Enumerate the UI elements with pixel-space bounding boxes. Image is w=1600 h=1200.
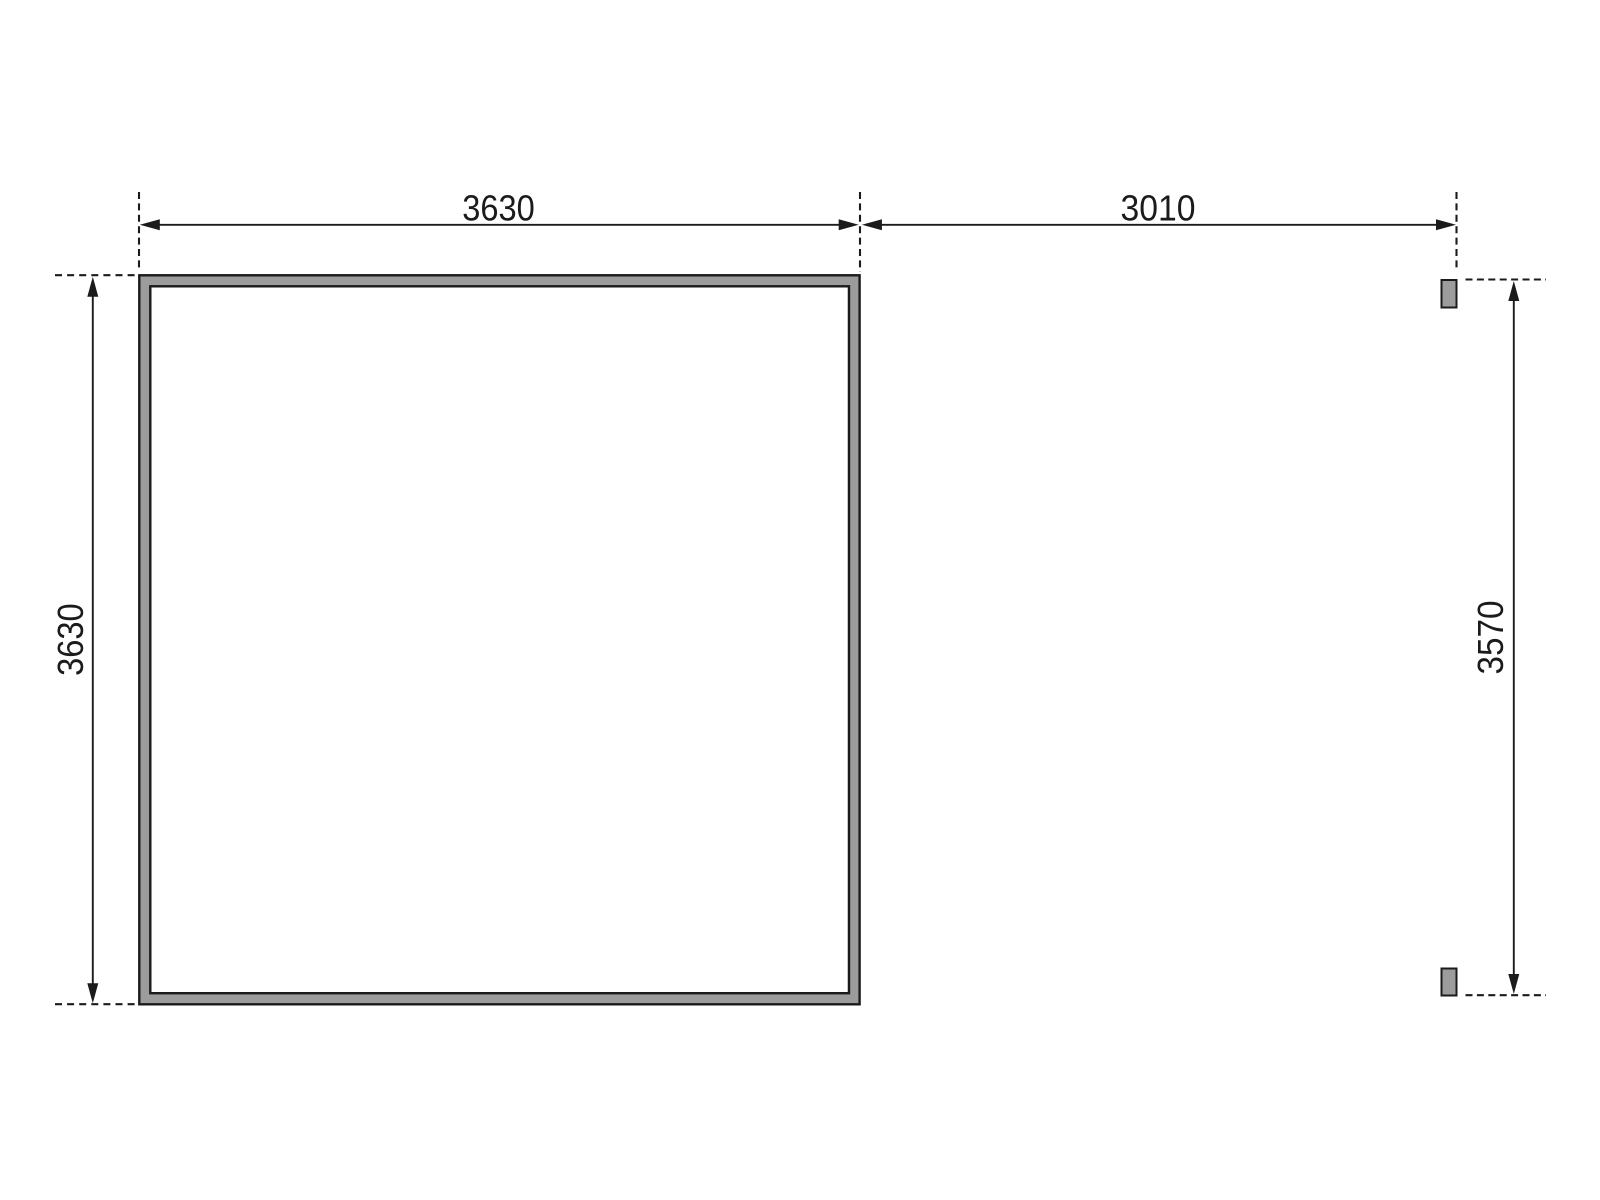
svg-text:3010: 3010	[1121, 188, 1196, 229]
svg-text:3630: 3630	[50, 603, 91, 676]
svg-text:3570: 3570	[1470, 601, 1511, 675]
svg-text:3630: 3630	[462, 188, 535, 229]
